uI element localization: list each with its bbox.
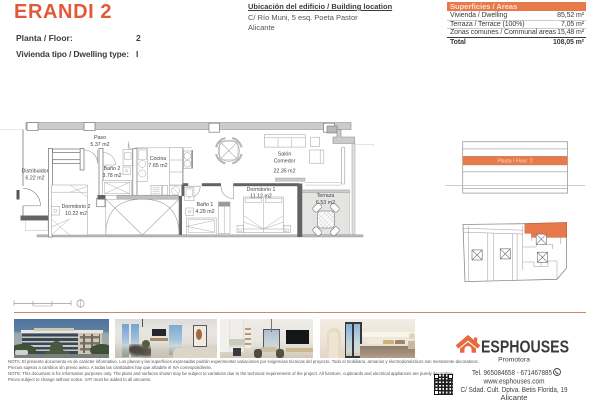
svg-text:6.53 m2: 6.53 m2 [316,200,335,206]
svg-text:5.37 m2: 5.37 m2 [90,142,109,148]
svg-text:Cocina: Cocina [150,156,167,162]
svg-text:Dormitorio 2: Dormitorio 2 [62,204,91,210]
svg-text:Terraza: Terraza [317,193,335,199]
svg-text:ESPHOUSES: ESPHOUSES [481,337,569,357]
svg-text:Alicante: Alicante [500,393,527,400]
svg-text:Distribuidor: Distribuidor [22,169,49,175]
svg-text:Dormitorio 1: Dormitorio 1 [247,187,276,193]
svg-text:4.29 m2: 4.29 m2 [195,209,214,215]
svg-text:Baño 1: Baño 1 [197,202,214,208]
svg-text:6.22 m2: 6.22 m2 [25,176,44,182]
svg-text:Baño 2: Baño 2 [104,166,121,172]
svg-text:22.35 m2: 22.35 m2 [273,169,295,175]
svg-text:Comedor: Comedor [274,159,296,165]
svg-text:Salón: Salón [278,152,292,158]
svg-text:Paso: Paso [94,135,106,141]
svg-text:Promotora: Promotora [498,357,530,364]
svg-text:Planta / Floor: 2: Planta / Floor: 2 [497,159,533,165]
svg-text:11.12 m2: 11.12 m2 [250,194,272,200]
svg-text:10.22 m2: 10.22 m2 [65,211,87,217]
svg-text:7.65 m2: 7.65 m2 [148,163,167,169]
svg-text:3.78 m2: 3.78 m2 [102,173,121,179]
